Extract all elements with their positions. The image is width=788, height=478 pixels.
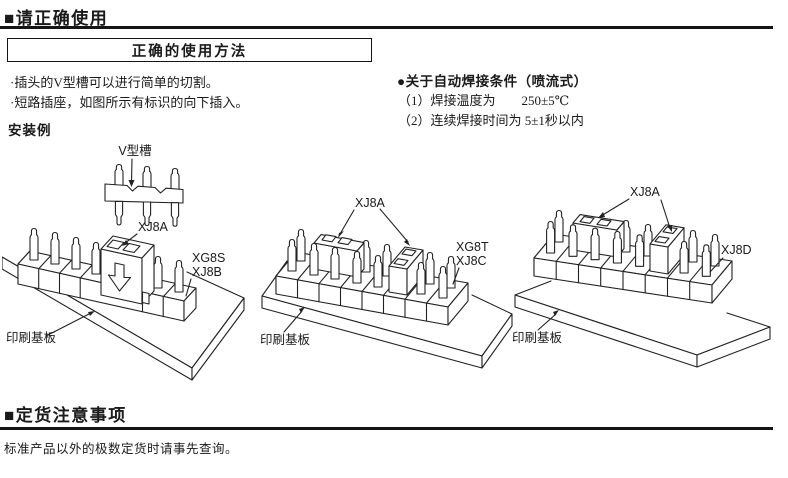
pin — [591, 228, 599, 260]
pin — [171, 203, 178, 227]
jumper-label: XJ8A — [630, 185, 661, 199]
pin — [374, 256, 382, 288]
pin — [439, 267, 447, 299]
pin — [689, 231, 697, 263]
usage-bullet-2: ·短路插座，如图所示有标识的向下插入。 — [10, 92, 248, 111]
pin — [143, 202, 150, 226]
page: ■请正确使用 正确的使用方法 ·插头的V型槽可以进行简单的切割。 ·短路插座，如… — [0, 0, 788, 478]
pin — [115, 201, 122, 225]
pin — [310, 244, 318, 276]
strip-label-line1: XG8T — [456, 240, 489, 254]
strip-label-line2: XJ8B — [192, 265, 222, 279]
pin — [417, 263, 425, 295]
pin — [175, 261, 183, 293]
pin — [569, 225, 577, 256]
pcb-label: 印刷基板 — [6, 331, 57, 345]
pin — [171, 169, 179, 190]
pin — [288, 240, 296, 272]
solder-condition-2: （2）连续焊接时间为 5±1秒以内 — [398, 110, 584, 129]
arrowhead — [129, 180, 135, 187]
pin — [613, 232, 621, 264]
heading-divider-bottom — [0, 427, 773, 430]
pin — [30, 229, 38, 261]
pin — [331, 248, 339, 280]
pin — [711, 235, 719, 267]
solder-conditions-heading: ●关于自动焊接条件（喷流式） — [397, 70, 588, 90]
section-heading-ordering: ■定货注意事项 — [4, 401, 127, 426]
method-box-title: 正确的使用方法 — [132, 40, 248, 61]
pcb-label-group: 印刷基板 — [512, 310, 563, 345]
pin — [72, 238, 80, 270]
method-box: 正确的使用方法 — [7, 38, 372, 62]
usage-bullet-1: ·插头的V型槽可以进行简单的切割。 — [10, 72, 219, 91]
v-groove-label: V型槽 — [118, 144, 151, 158]
pin — [297, 230, 305, 262]
pin — [154, 257, 162, 289]
pin — [547, 222, 555, 254]
pin — [426, 253, 434, 285]
strip-label: XJ8D — [721, 243, 752, 257]
pin — [353, 252, 361, 284]
jumper-front-face — [650, 244, 668, 274]
pcb-label: 印刷基板 — [260, 333, 311, 347]
strip-label-group: XG8T XJ8C — [453, 240, 489, 284]
arrowhead — [598, 212, 605, 218]
pcb — [515, 281, 770, 367]
jumper-latch-tab — [143, 292, 150, 304]
heading-divider-top — [0, 26, 773, 29]
jumper-label: XJ8A — [355, 196, 386, 210]
strip-label-line2: XJ8C — [456, 254, 487, 268]
square-marker-icon: ■ — [4, 406, 16, 425]
pin — [702, 245, 710, 276]
installation-diagram-2: 印刷基板 — [260, 188, 514, 400]
arrowhead — [404, 239, 410, 246]
jumper-label: XJ8A — [138, 220, 169, 234]
pcb-label: 印刷基板 — [512, 331, 563, 345]
installation-diagram-3: 印刷基板 — [512, 172, 788, 378]
pin — [92, 243, 100, 275]
installation-diagram-1: 印刷基板 — [2, 140, 260, 392]
strip-label-line1: XG8S — [192, 251, 225, 265]
pin — [51, 233, 59, 265]
pin — [636, 235, 644, 266]
section-heading-ordering-text: 定货注意事项 — [16, 406, 127, 425]
shorting-jumper — [101, 236, 154, 304]
pin — [555, 211, 563, 243]
pin — [680, 242, 688, 274]
pin — [143, 167, 151, 188]
ordering-note: 标准产品以外的极数定货时请事先查询。 — [4, 438, 238, 457]
jumper-front-face — [389, 266, 407, 295]
plug-header-3pin — [105, 165, 183, 227]
installation-example-label: 安装例 — [8, 119, 52, 139]
pin — [115, 165, 123, 186]
solder-condition-1: （1）焊接温度为 250±5℃ — [398, 90, 569, 109]
